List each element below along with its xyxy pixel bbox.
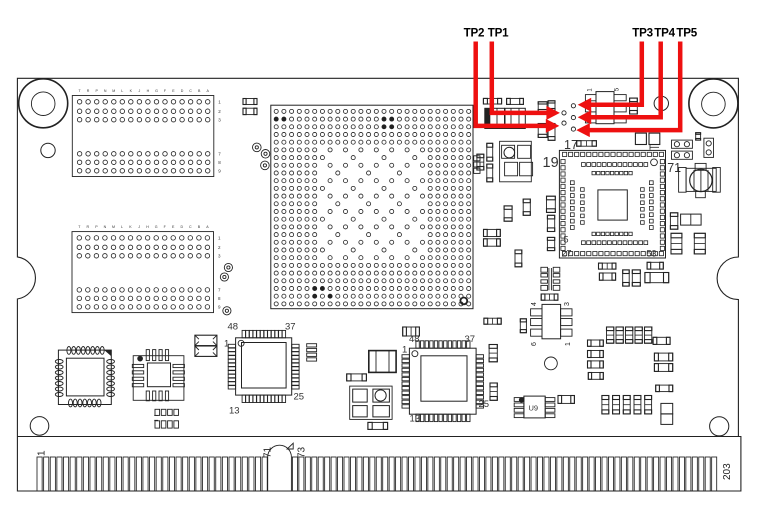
- svg-text:M: M: [112, 225, 115, 229]
- svg-text:D: D: [181, 89, 184, 93]
- svg-text:53: 53: [647, 249, 657, 259]
- svg-text:37: 37: [465, 334, 476, 345]
- svg-text:G: G: [155, 225, 158, 229]
- svg-text:R: R: [86, 225, 89, 229]
- svg-text:48: 48: [228, 322, 239, 333]
- svg-text:27: 27: [562, 249, 572, 259]
- svg-text:1: 1: [224, 339, 229, 350]
- svg-text:L: L: [121, 225, 123, 229]
- svg-text:N: N: [104, 225, 107, 229]
- svg-text:1: 1: [36, 450, 47, 456]
- svg-text:TP5: TP5: [676, 26, 697, 39]
- svg-text:71: 71: [667, 161, 681, 175]
- svg-text:L: L: [121, 89, 123, 93]
- svg-text:25: 25: [479, 399, 490, 410]
- svg-text:37: 37: [285, 322, 296, 333]
- svg-text:203: 203: [722, 463, 733, 480]
- svg-text:19: 19: [543, 155, 559, 171]
- svg-text:H: H: [147, 89, 150, 93]
- svg-text:U9: U9: [529, 404, 539, 413]
- svg-text:C: C: [189, 225, 192, 229]
- svg-text:13: 13: [410, 414, 421, 425]
- svg-text:1: 1: [565, 342, 572, 346]
- svg-text:3: 3: [564, 302, 571, 306]
- svg-text:R: R: [87, 89, 90, 93]
- svg-text:H: H: [146, 225, 149, 229]
- svg-text:N: N: [104, 89, 107, 93]
- svg-text:5: 5: [564, 235, 569, 245]
- svg-text:J: J: [138, 225, 140, 229]
- svg-text:13: 13: [229, 406, 240, 417]
- svg-text:C: C: [189, 89, 192, 93]
- svg-text:73: 73: [297, 446, 308, 458]
- svg-text:4: 4: [531, 302, 538, 306]
- svg-text:71: 71: [263, 446, 274, 458]
- svg-text:1: 1: [402, 345, 407, 356]
- svg-text:25: 25: [294, 392, 305, 403]
- svg-text:J: J: [139, 89, 141, 93]
- svg-text:48: 48: [409, 334, 420, 345]
- svg-text:TP2: TP2: [464, 26, 485, 39]
- svg-text:TP1: TP1: [488, 26, 509, 39]
- svg-text:TP4: TP4: [654, 26, 675, 39]
- svg-text:6: 6: [531, 342, 538, 346]
- svg-text:17: 17: [564, 138, 578, 152]
- svg-text:D: D: [180, 225, 183, 229]
- svg-text:M: M: [112, 89, 115, 93]
- svg-text:TP3: TP3: [632, 26, 653, 39]
- svg-text:G: G: [155, 89, 158, 93]
